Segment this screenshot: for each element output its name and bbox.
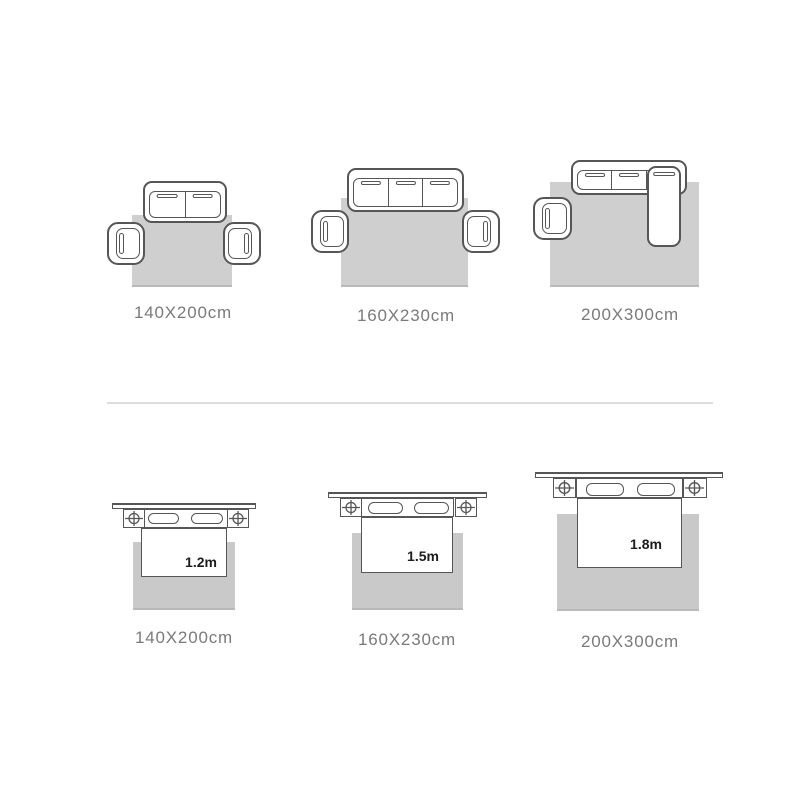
armchair-left-icon: [533, 197, 572, 240]
size-label: 160X230cm: [357, 306, 455, 326]
lamp-cross-icon: [685, 480, 704, 496]
sofa-cushion: [578, 171, 612, 189]
sofa-cushion: [354, 179, 389, 206]
armchair-right-icon: [223, 222, 261, 265]
armchair-right-icon: [462, 210, 500, 253]
sofa-cushion: [612, 171, 646, 189]
size-label: 200X300cm: [581, 305, 679, 325]
cushion-slot: [395, 181, 415, 185]
living-room-scene-200x300: 200X300cm: [525, 150, 715, 330]
bedroom-scene-200x300: 1.8m 200X300cm: [535, 440, 725, 658]
living-room-scene-140x200: 140X200cm: [95, 155, 275, 330]
armchair-back-slot: [323, 221, 328, 242]
sofa-cushion: [423, 179, 457, 206]
cushion-slot: [653, 172, 675, 176]
headboard-bar: [328, 492, 487, 498]
bed-width-label: 1.5m: [407, 548, 439, 564]
sofa-cushion: [186, 192, 221, 217]
cushion-slot: [361, 181, 381, 185]
sofa-seat: [149, 191, 221, 218]
nightstand-right-icon: [683, 478, 707, 498]
cushion-slot: [430, 181, 450, 185]
lamp-cross-icon: [457, 500, 475, 515]
pillow-icon: [586, 483, 624, 496]
two-seat-sofa-icon: [143, 181, 227, 223]
armchair-cushion: [116, 228, 140, 259]
lamp-cross-icon: [342, 500, 360, 515]
sofa-cushion: [150, 192, 186, 217]
bed-icon: 1.8m: [577, 498, 682, 568]
armchair-cushion: [467, 216, 491, 247]
chaise-lounge-icon: [647, 166, 681, 247]
nightstand-right-icon: [455, 498, 477, 517]
size-label: 140X200cm: [135, 628, 233, 648]
size-label: 160X230cm: [358, 630, 456, 650]
rug-size-guide: 140X200cm 160X230cm: [0, 0, 800, 800]
size-label: 200X300cm: [581, 632, 679, 652]
armchair-back-slot: [119, 233, 124, 254]
armchair-cushion: [320, 216, 344, 247]
pillow-icon: [368, 502, 403, 514]
armchair-back-slot: [545, 208, 550, 229]
rug-140x200: [132, 215, 232, 287]
armchair-back-slot: [483, 221, 488, 242]
pillow-icon: [637, 483, 675, 496]
headboard-bar: [535, 472, 723, 478]
bed-headrest: [139, 509, 232, 528]
armchair-left-icon: [311, 210, 349, 253]
armchair-cushion: [542, 203, 567, 234]
cushion-slot: [585, 173, 605, 177]
cushion-slot: [619, 173, 639, 177]
three-seat-sofa-icon: [347, 168, 464, 212]
bed-width-label: 1.8m: [630, 536, 662, 552]
bed-icon: 1.5m: [361, 517, 453, 573]
armchair-left-icon: [107, 222, 145, 265]
nightstand-left-icon: [553, 478, 576, 498]
bed-headrest: [576, 478, 683, 498]
pillow-icon: [191, 513, 223, 524]
sofa-seat: [353, 178, 458, 207]
armchair-cushion: [228, 228, 252, 259]
bed-width-label: 1.2m: [185, 554, 217, 570]
cushion-slot: [192, 194, 213, 198]
lamp-cross-icon: [125, 511, 143, 526]
nightstand-left-icon: [123, 509, 145, 528]
cushion-slot: [157, 194, 178, 198]
pillow-icon: [414, 502, 449, 514]
nightstand-left-icon: [340, 498, 362, 517]
bedroom-scene-160x230: 1.5m 160X230cm: [320, 460, 495, 655]
sofa-cushion: [389, 179, 424, 206]
bed-headrest: [359, 498, 454, 517]
bed-icon: 1.2m: [141, 528, 227, 577]
nightstand-right-icon: [227, 509, 249, 528]
section-divider: [107, 402, 713, 404]
lamp-cross-icon: [229, 511, 247, 526]
living-room-scene-160x230: 160X230cm: [305, 155, 505, 330]
armchair-back-slot: [244, 233, 249, 254]
headboard-bar: [112, 503, 256, 509]
lamp-cross-icon: [555, 480, 574, 496]
pillow-icon: [148, 513, 179, 524]
bedroom-scene-140x200: 1.2m 140X200cm: [100, 470, 270, 655]
size-label: 140X200cm: [134, 303, 232, 323]
